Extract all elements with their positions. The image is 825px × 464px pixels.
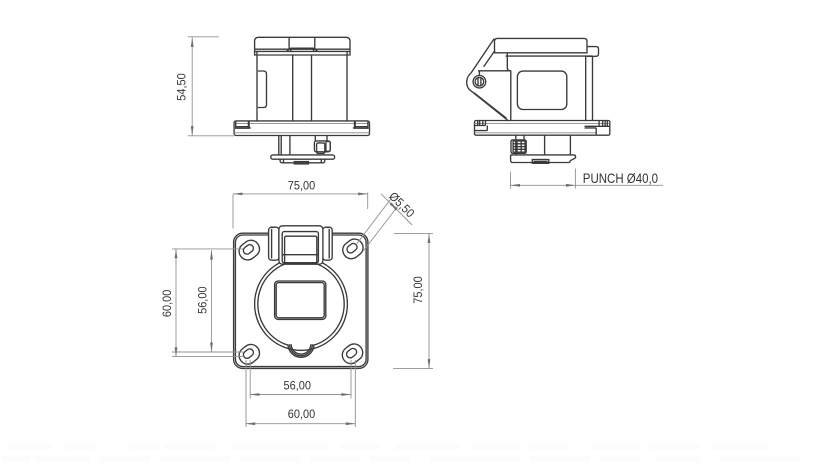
svg-text:75,00: 75,00 — [288, 179, 315, 193]
svg-text:75,00: 75,00 — [412, 276, 426, 303]
svg-text:56,00: 56,00 — [284, 379, 311, 393]
svg-text:60,00: 60,00 — [288, 407, 315, 421]
svg-text:54,50: 54,50 — [175, 73, 189, 100]
svg-text:PUNCH Ø40,0: PUNCH Ø40,0 — [583, 170, 658, 186]
svg-text:56,00: 56,00 — [196, 286, 210, 313]
svg-text:60,00: 60,00 — [160, 290, 174, 317]
